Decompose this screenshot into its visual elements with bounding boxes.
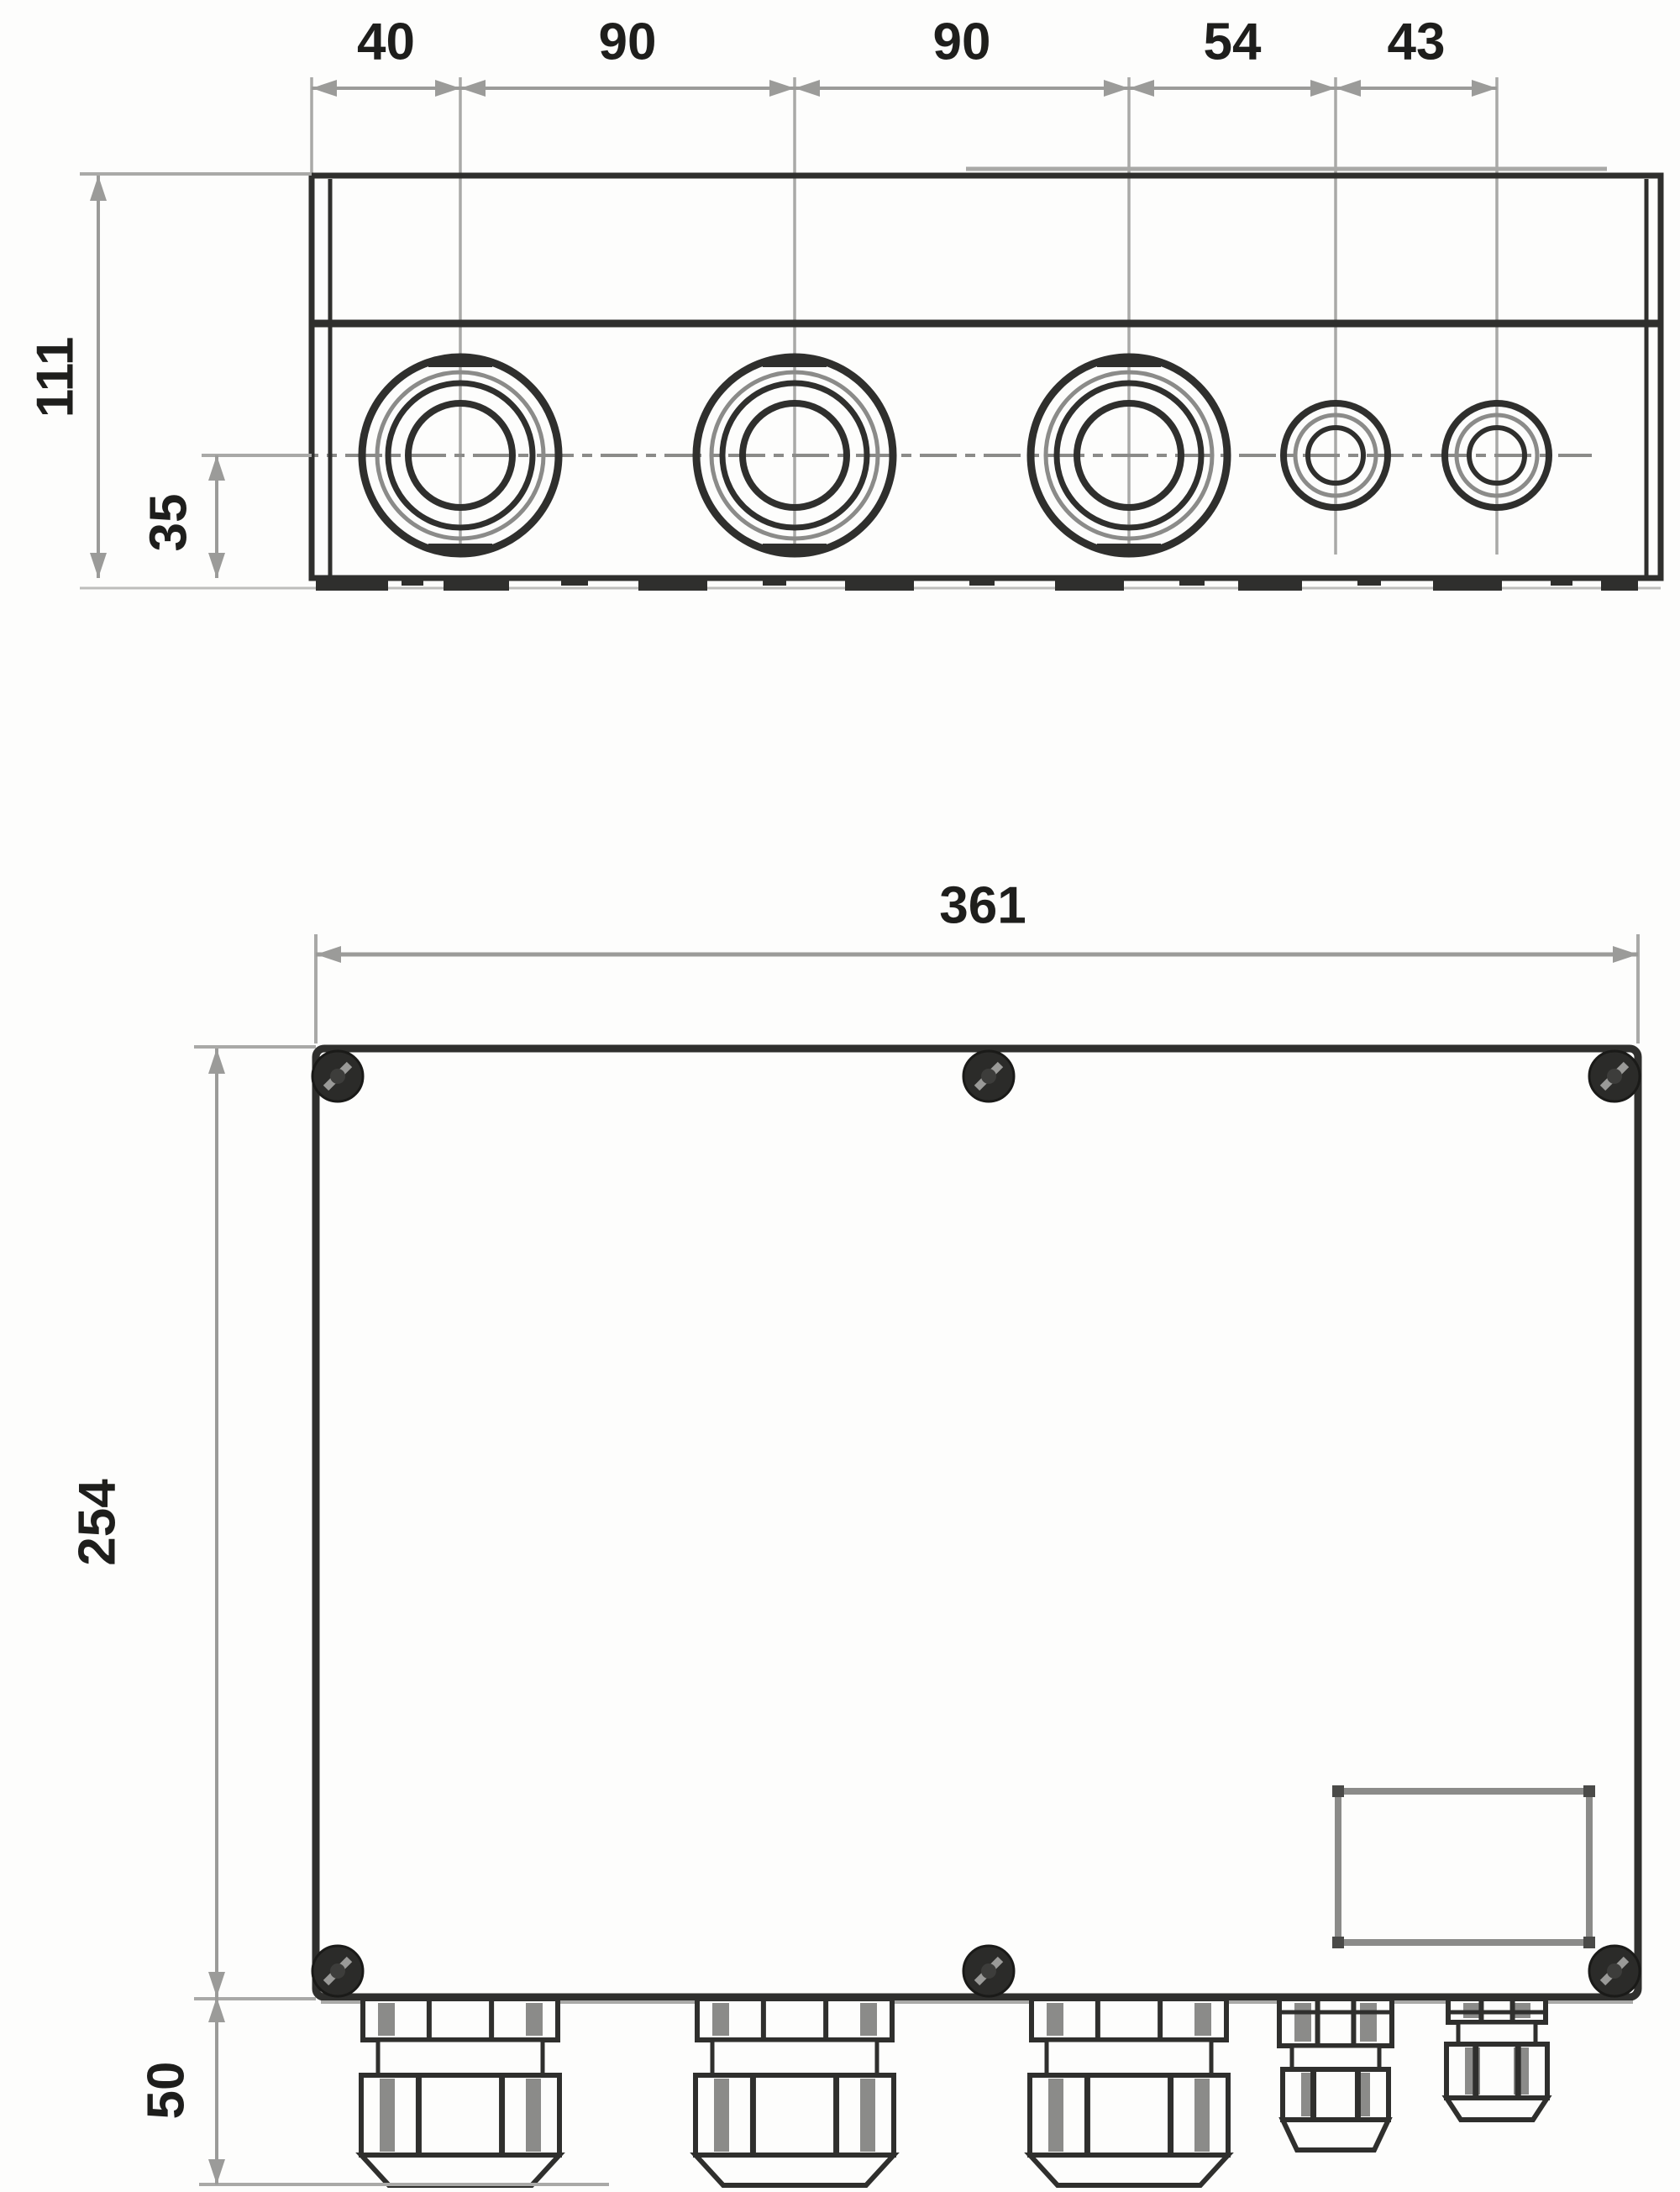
gland-cone [696,2155,894,2185]
underside-tab [763,578,786,586]
underside-tab [1357,578,1381,586]
dim-label-254: 254 [69,1479,127,1566]
nameplate-corner [1583,1937,1595,1948]
underside-tab [1433,578,1502,591]
technical-drawing-page: 40909054431113536125450 [0,0,1680,2192]
gland-neck [1047,2040,1211,2075]
screw-center [981,1963,996,1979]
underside-tab [316,578,388,591]
screw-center [330,1963,345,1979]
nameplate-frame [1338,1791,1589,1942]
gland-nut-facet [860,2079,875,2152]
enclosure-dimension-drawing: 40909054431113536125450 [0,0,1680,2192]
underside-tab [1179,578,1205,586]
gland-neck [712,2040,877,2075]
nameplate [1332,1785,1595,1948]
gland-neck [378,2040,543,2075]
underside-tab [561,578,588,586]
underside-tab [444,578,509,591]
underside-tab [1238,578,1302,591]
gland-nut-facet [714,2079,729,2152]
dim-label-43-4: 43 [1388,13,1446,71]
gland-large-2 [696,1999,894,2185]
gland-cone [1030,2155,1228,2185]
screw-top-left [312,1051,363,1101]
dim-label-90-2: 90 [933,13,991,71]
gland-nut [1446,2044,1547,2098]
gland-body-facet [526,2003,543,2036]
gland-nut-facet [1048,2079,1063,2152]
gland-body-facet [1294,2003,1311,2042]
underside-tab [969,578,995,586]
dim-label-90-1: 90 [599,13,657,71]
screw-bottom-left [312,1946,363,1996]
gland-nut [1283,2069,1389,2120]
screw-bottom-center [963,1946,1014,1996]
dim-label-54-3: 54 [1204,13,1262,71]
screw-bottom-right [1589,1946,1640,1996]
underside-tab [1055,578,1124,591]
dim-label-361: 361 [939,877,1026,935]
screw-center [981,1069,996,1084]
gland-body-facet [1047,2003,1063,2036]
gland-nut-facet [380,2079,395,2152]
underside-tab [402,578,423,586]
nameplate-corner [1332,1937,1344,1948]
gland-body-facet [860,2003,877,2036]
screw-center [1607,1069,1622,1084]
nameplate-corner [1332,1785,1344,1797]
gland-cone [361,2155,559,2185]
gland-body-facet [712,2003,729,2036]
gland-cone [1283,2120,1389,2150]
gland-body-facet [1194,2003,1211,2036]
underside-tab [845,578,914,591]
dim-label-35: 35 [140,494,198,552]
gland-medium [1279,1999,1392,2150]
dim-label-40-0: 40 [357,13,415,71]
gland-large-1 [361,1999,559,2185]
underside-tab [1601,578,1638,591]
screw-top-center [963,1051,1014,1101]
gland-body-facet [378,2003,395,2036]
gland-neck [1458,2022,1536,2044]
dim-label-50: 50 [138,2062,196,2120]
dim-label-111: 111 [27,337,85,418]
gland-large-3 [1030,1999,1228,2185]
gland-nut-facet [1194,2079,1210,2152]
gland-body-facet [1360,2003,1377,2042]
gland-neck [1292,2046,1379,2069]
screw-center [1607,1963,1622,1979]
screw-top-right [1589,1051,1640,1101]
underside-tab [1551,578,1572,586]
gland-cone [1446,2098,1547,2120]
gland-small [1446,1999,1547,2120]
underside-tab [638,578,707,591]
screw-center [330,1069,345,1084]
gland-nut-facet [526,2079,541,2152]
nameplate-corner [1583,1785,1595,1797]
